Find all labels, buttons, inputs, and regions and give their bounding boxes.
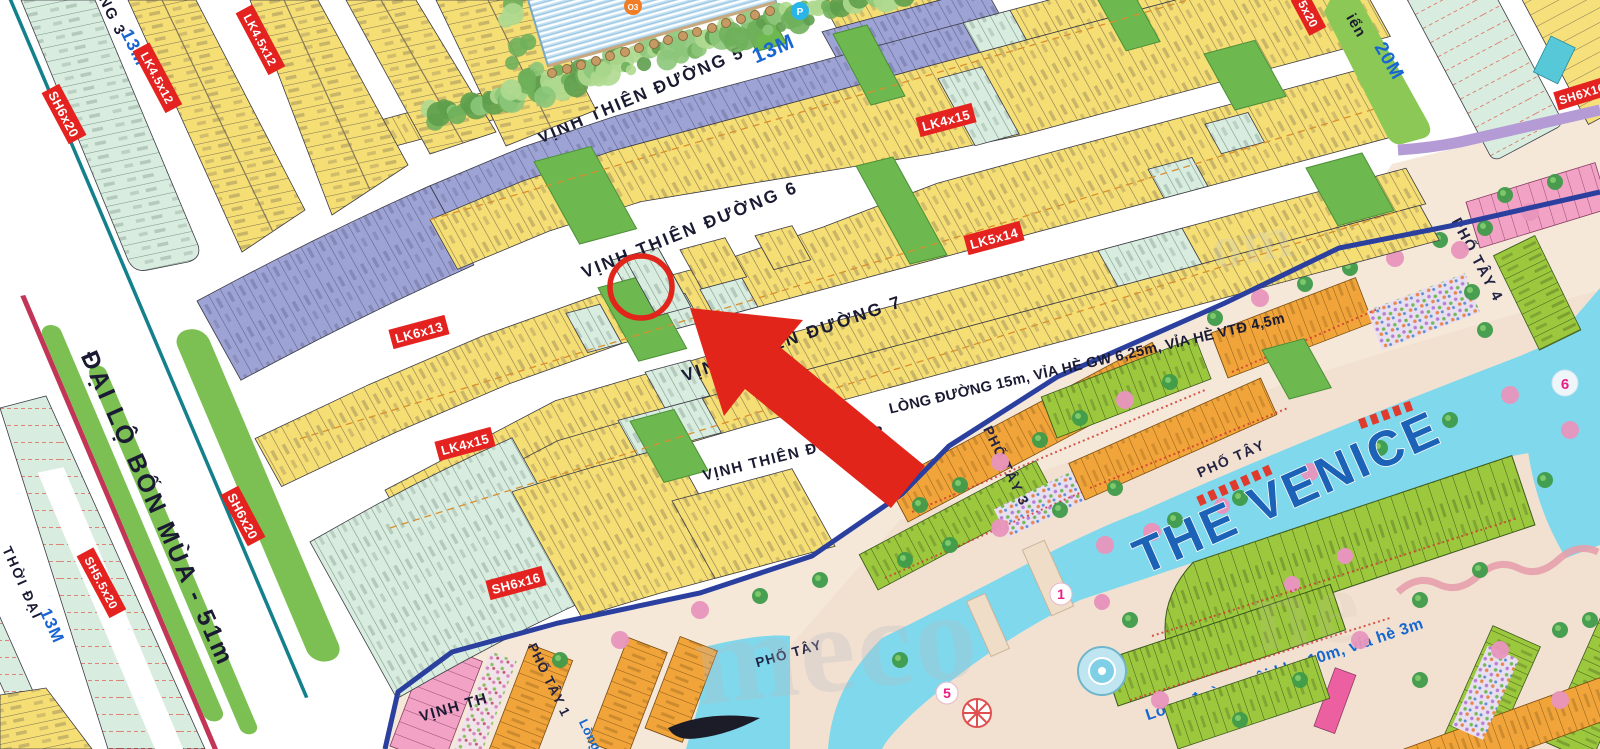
svg-text:ne: ne (1246, 546, 1367, 674)
svg-text:6: 6 (1561, 376, 1569, 393)
svg-text:O3: O3 (628, 3, 639, 12)
svg-text:P: P (797, 7, 804, 18)
svg-text:om: om (1205, 203, 1297, 282)
svg-text:1: 1 (1057, 586, 1065, 602)
